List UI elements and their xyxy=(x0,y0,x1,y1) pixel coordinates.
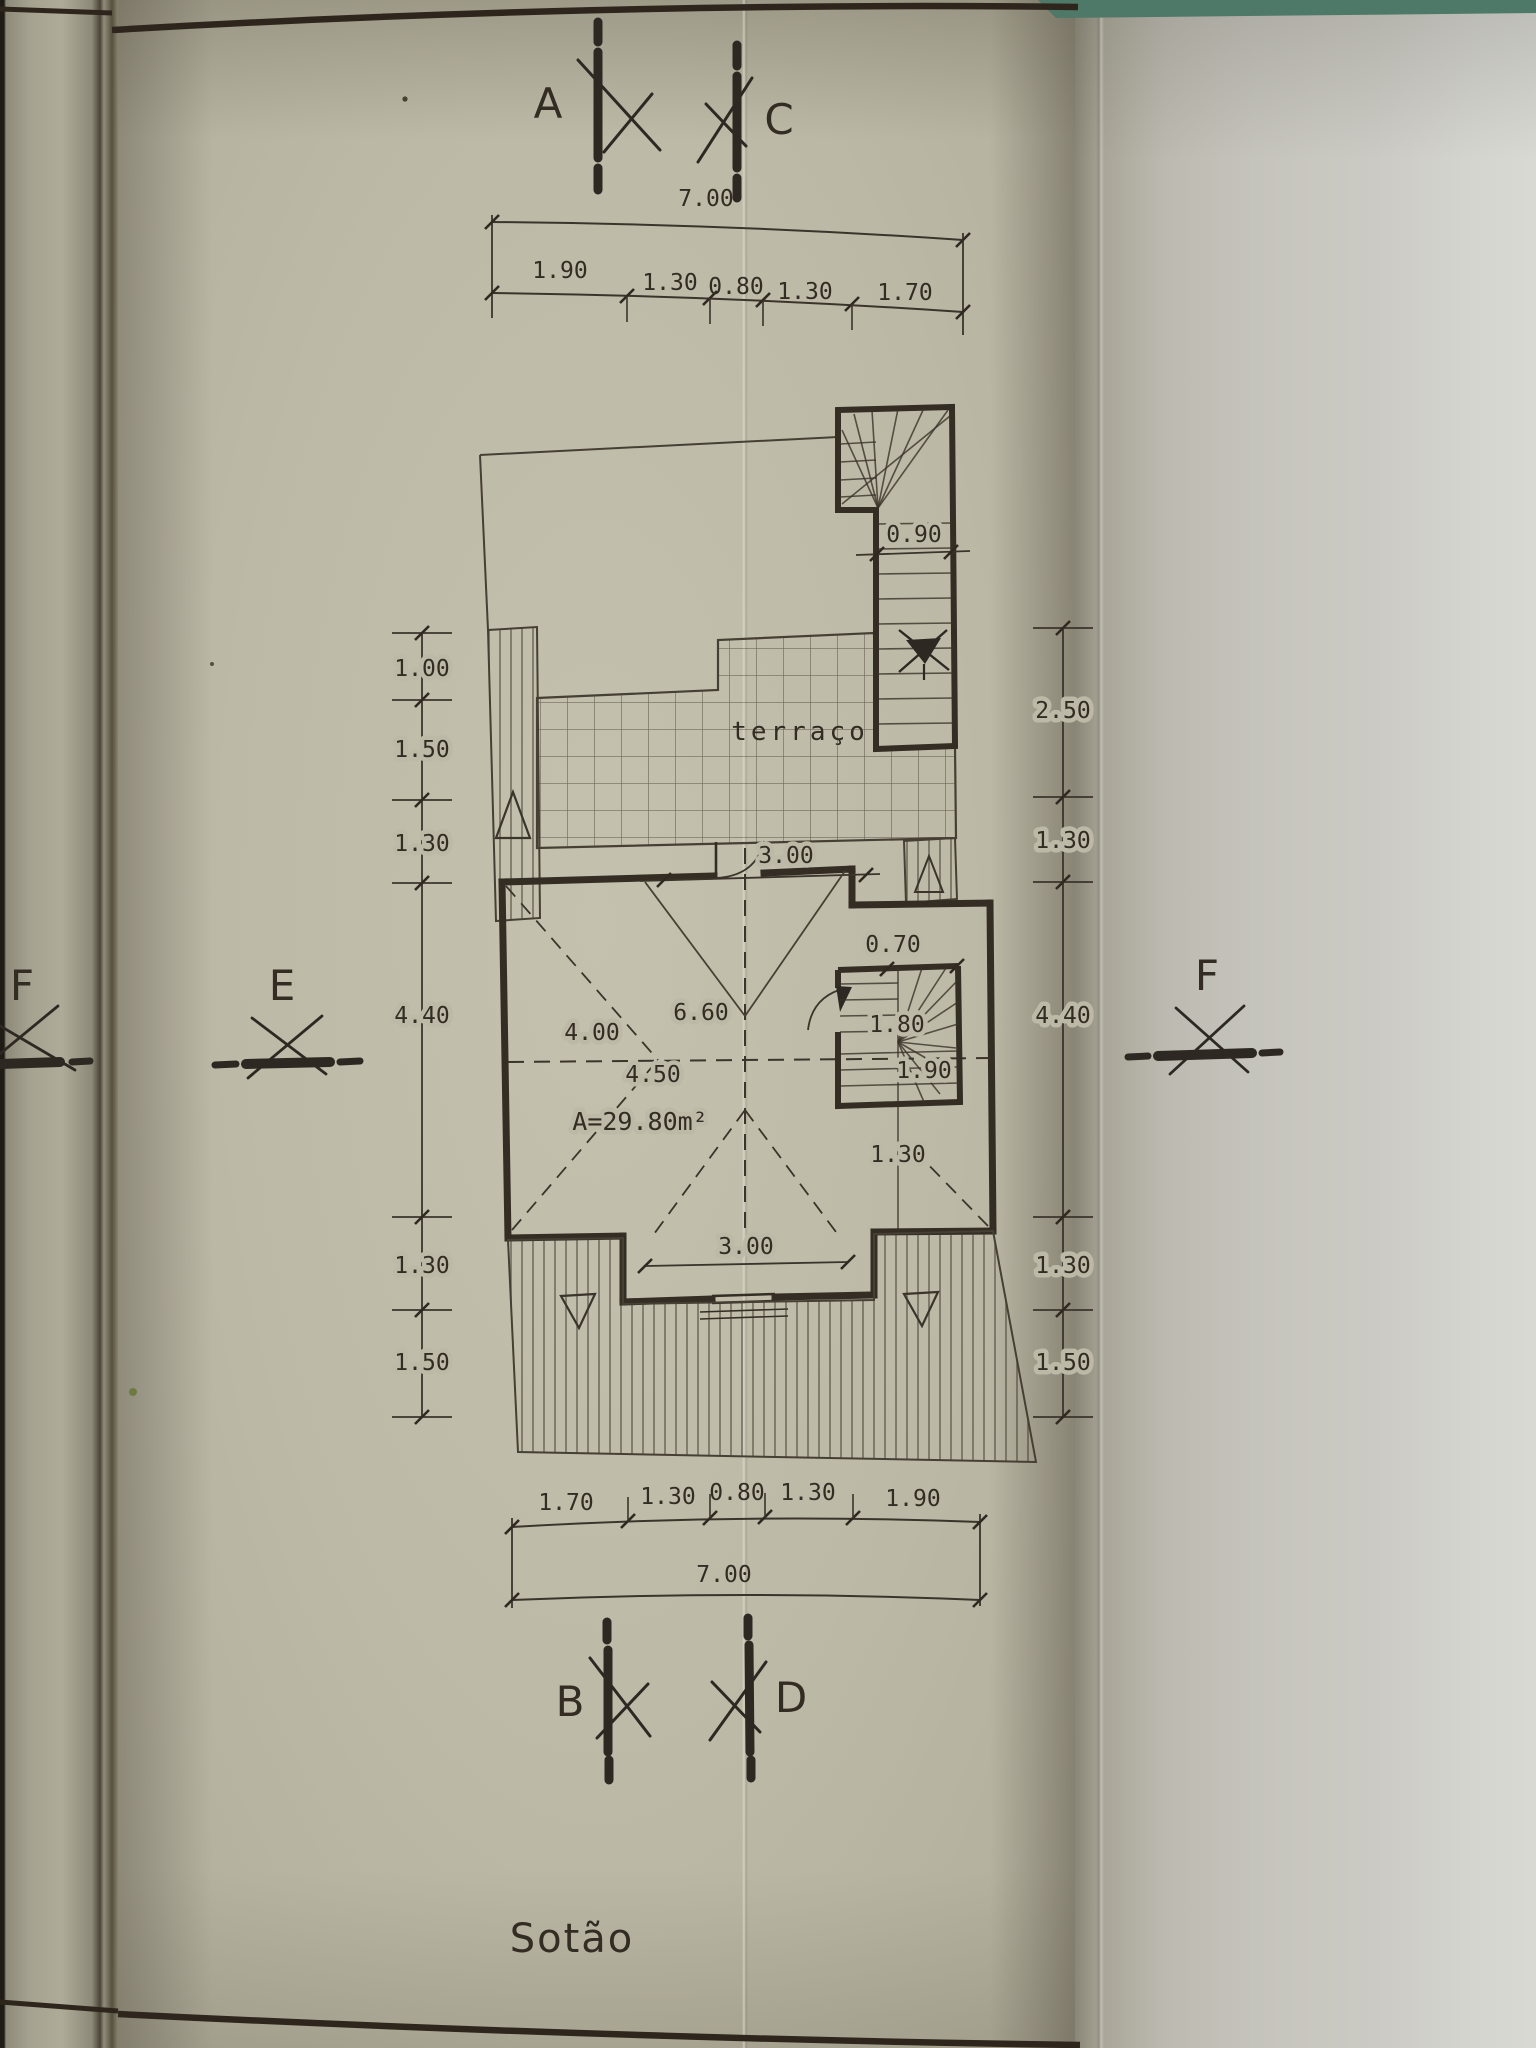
dim-stair-width: 0.90 xyxy=(886,522,941,548)
dim-right-1: 2.50 xyxy=(1035,698,1090,724)
top-dimension-chain: 7.00 1.90 1.30 0.80 1.30 1.70 xyxy=(485,186,970,335)
section-cut-cross xyxy=(604,94,652,152)
dim-room-left: 4.00 xyxy=(564,1020,619,1046)
dim-below-stair: 1.30 xyxy=(870,1142,925,1168)
section-marker-c: C xyxy=(698,45,794,198)
roof-band-left xyxy=(488,627,540,921)
terrace-door xyxy=(716,841,764,878)
dim-bottom-seg4: 1.30 xyxy=(780,1480,835,1506)
bottom-dimension-chain: 1.70 1.30 0.80 1.30 1.90 7.00 xyxy=(505,1480,987,1608)
right-dimension-chain: 2.50 1.30 4.40 1.30 1.50 xyxy=(1033,621,1093,1424)
dim-right-2: 1.30 xyxy=(1035,828,1090,854)
drawing-title: Sotão xyxy=(510,1916,635,1962)
dim-terrace-door: 3.00 xyxy=(758,843,813,869)
section-label-d: D xyxy=(775,1673,807,1722)
dim-bottom-seg5: 1.90 xyxy=(885,1486,940,1512)
dim-room-diagonal: 6.60 xyxy=(673,1000,728,1026)
section-label-a: A xyxy=(534,79,563,128)
dim-right-4: 1.30 xyxy=(1035,1253,1090,1279)
roof-left-edge xyxy=(480,455,488,630)
dim-left-1: 1.00 xyxy=(394,656,449,682)
section-label-f-left: F xyxy=(10,961,34,1010)
section-cut-diagonal xyxy=(698,78,752,162)
section-marker-f-left: F xyxy=(0,961,90,1070)
section-marker-f-right: F xyxy=(1128,951,1280,1074)
left-dimension-chain: 1.00 1.50 1.30 4.40 1.30 1.50 xyxy=(392,626,452,1424)
dim-bottom-total: 7.00 xyxy=(696,1562,751,1588)
section-label-f-right: F xyxy=(1195,951,1219,1000)
bottom-border-line xyxy=(118,2014,1080,2045)
dim-top-seg4: 1.30 xyxy=(777,279,832,305)
dim-left-2: 1.50 xyxy=(394,737,449,763)
paper-speck xyxy=(402,96,407,101)
section-cut-diagonal xyxy=(578,60,660,150)
dim-room-mid: 4.50 xyxy=(625,1062,680,1088)
floor-plan-drawing: A C 7.00 1.90 1.30 0.80 xyxy=(0,0,1536,2048)
dim-bottom-seg1: 1.70 xyxy=(538,1490,593,1516)
dim-top-seg5: 1.70 xyxy=(877,280,932,306)
room-area-label: A=29.80m² xyxy=(572,1107,707,1136)
section-label-b: B xyxy=(556,1677,585,1726)
dim-left-4: 4.40 xyxy=(394,1003,449,1029)
roof-outline xyxy=(480,437,838,630)
dim-left-6: 1.50 xyxy=(394,1350,449,1376)
terrace-area: terraço xyxy=(537,633,956,848)
bottom-border-left-page xyxy=(0,2002,118,2011)
section-label-e: E xyxy=(269,961,296,1010)
door-swing-arc xyxy=(716,841,764,878)
terrace-label: terraço xyxy=(731,717,869,747)
dim-right-3: 4.40 xyxy=(1035,1003,1090,1029)
table-edge-teal-sliver xyxy=(1038,0,1536,18)
paper-speck xyxy=(210,662,214,666)
dim-left-5: 1.30 xyxy=(394,1253,449,1279)
sheet-borders xyxy=(0,0,1536,2045)
section-marker-e: E xyxy=(215,961,360,1078)
photographed-blueprint-sheet: A C 7.00 1.90 1.30 0.80 xyxy=(0,0,1536,2048)
dim-right-5: 1.50 xyxy=(1035,1350,1090,1376)
roof-band-right xyxy=(904,838,957,903)
dim-left-3: 1.30 xyxy=(394,831,449,857)
dim-top-seg1: 1.90 xyxy=(532,258,587,284)
dim-bottom-seg2: 1.30 xyxy=(640,1484,695,1510)
dim-bottom-window: 3.00 xyxy=(718,1234,773,1260)
bottom-roof-hatch: 3.00 xyxy=(508,1231,1036,1462)
dim-top-total: 7.00 xyxy=(678,186,733,212)
roof-top-edge xyxy=(480,437,838,455)
dim-stair-width-lower: 1.80 xyxy=(869,1012,924,1038)
lower-stair: 0.70 1.80 1.90 1.30 xyxy=(808,932,964,1230)
dim-stair-length: 1.90 xyxy=(896,1058,951,1084)
paper-speck-green xyxy=(129,1388,137,1396)
dim-top-seg3: 0.80 xyxy=(708,274,763,300)
section-label-c: C xyxy=(764,95,793,144)
door-leaf xyxy=(836,986,852,1012)
section-marker-d: D xyxy=(710,1618,807,1778)
top-border-left-page xyxy=(0,9,112,13)
section-marker-a: A xyxy=(534,22,660,190)
dim-bottom-seg3: 0.80 xyxy=(709,1480,764,1506)
section-marker-b: B xyxy=(556,1622,650,1780)
dim-landing: 0.70 xyxy=(865,932,920,958)
dim-top-seg2: 1.30 xyxy=(642,270,697,296)
